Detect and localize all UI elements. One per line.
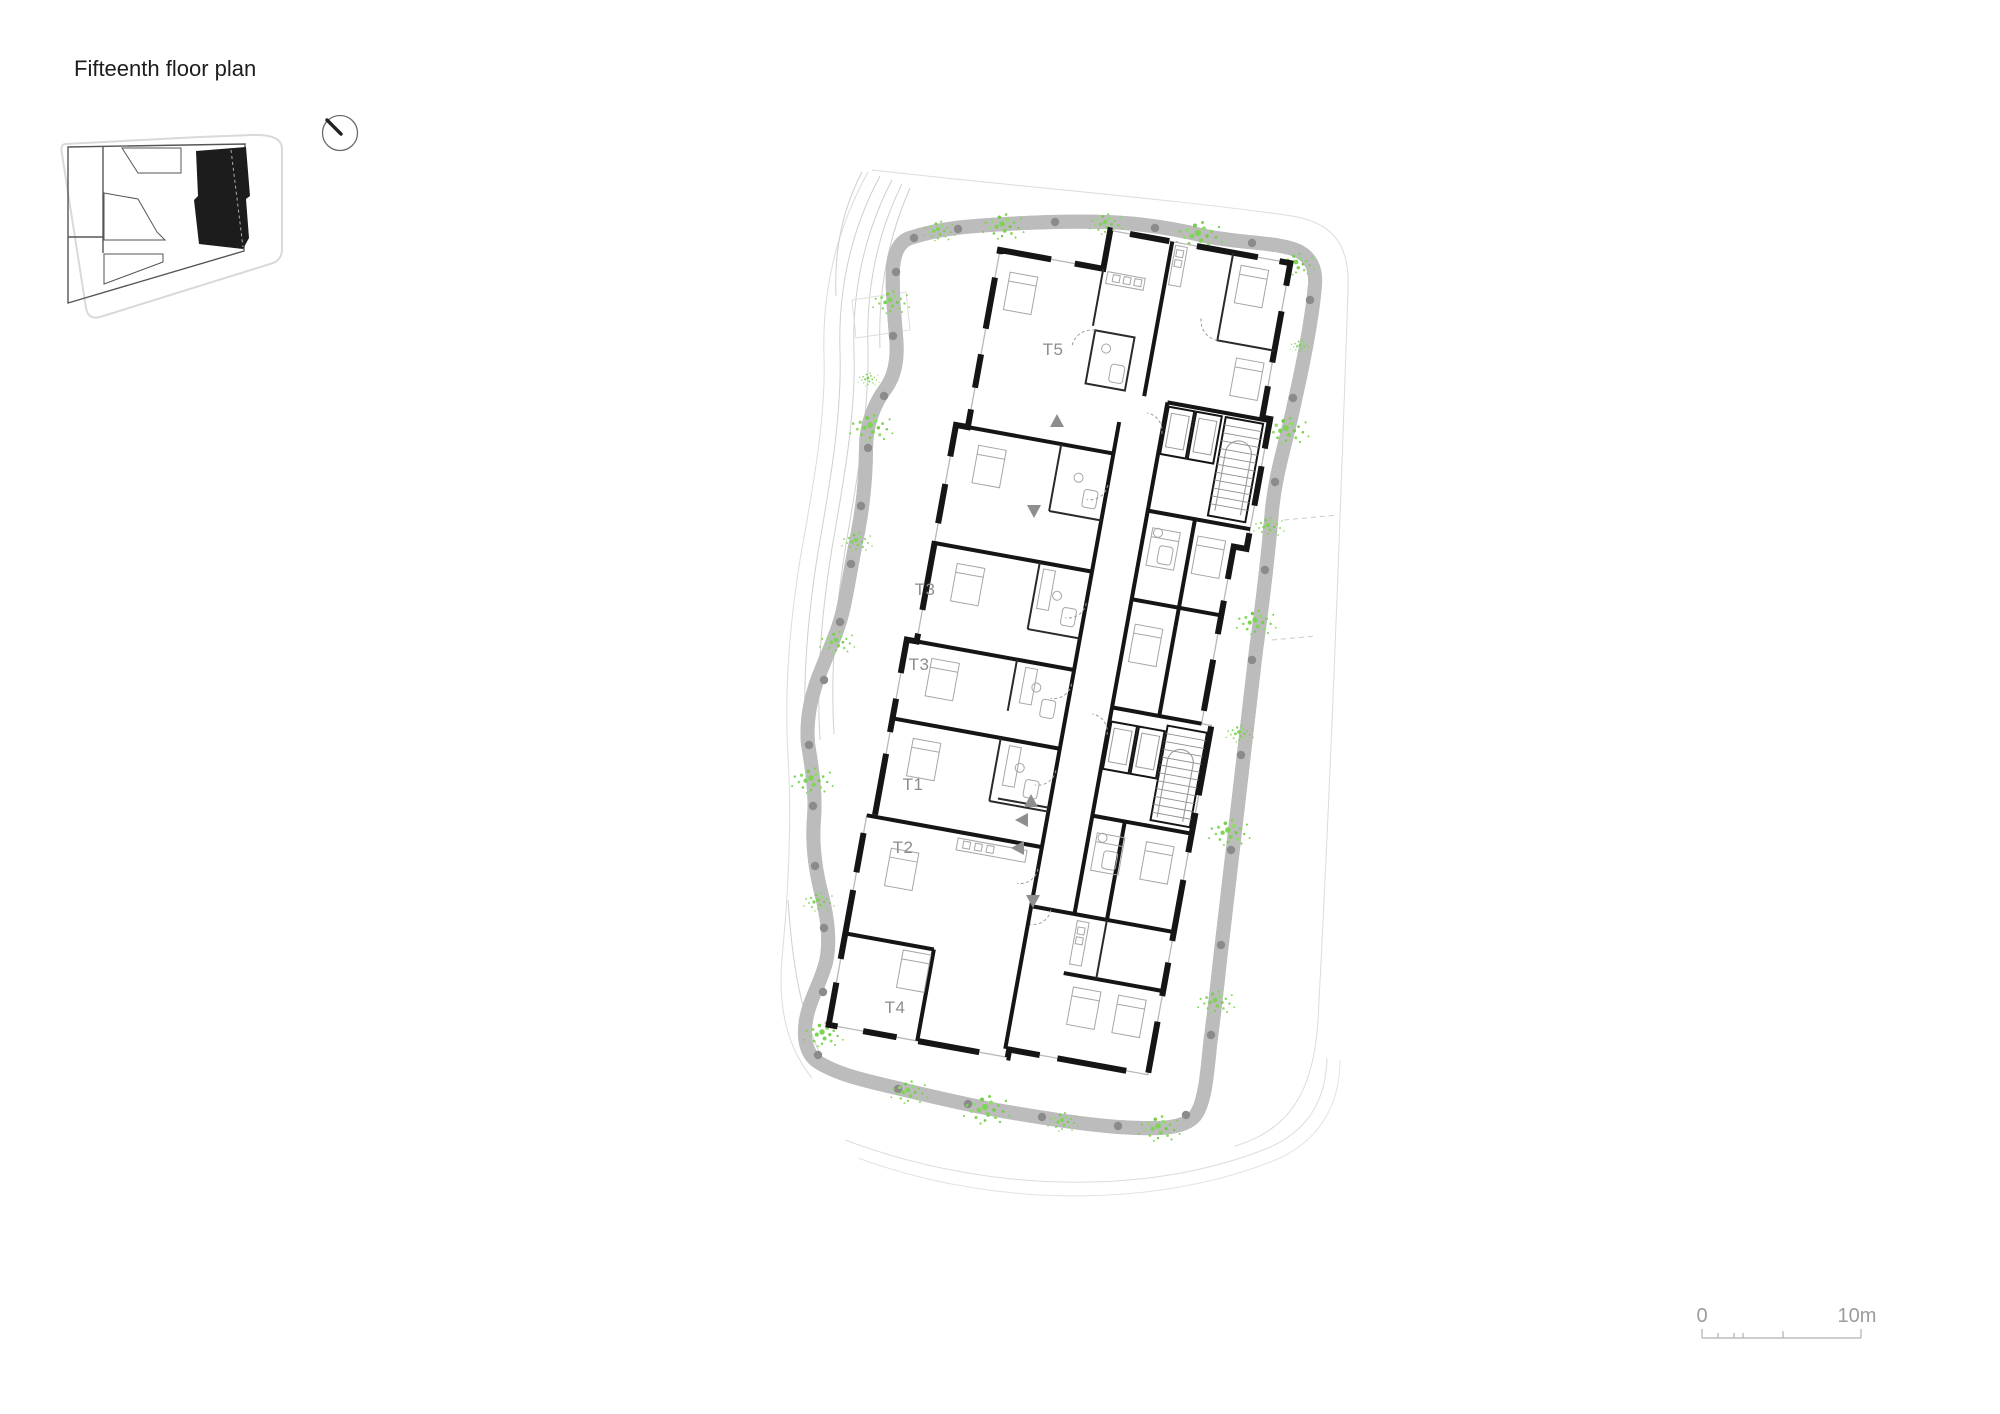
scale-zero-label: 0: [1696, 1305, 1707, 1327]
page-title: Fifteenth floor plan: [74, 56, 256, 81]
unit-label-t2: T2: [893, 838, 914, 857]
unit-label-t3-lower: T3: [909, 655, 930, 674]
unit-label-t4: T4: [885, 998, 906, 1017]
unit-label-t3-upper: T3: [915, 580, 936, 599]
unit-label-t1: T1: [903, 775, 924, 794]
unit-label-t5: T5: [1043, 340, 1064, 359]
scale-max-label: 10m: [1838, 1305, 1877, 1327]
drawing-sheet: T5 T3 T3 T1 T2 T4 Fifteenth floor: [0, 0, 2000, 1414]
floor-plan-sheet: T5 T3 T3 T1 T2 T4 Fifteenth floor: [0, 0, 2000, 1414]
